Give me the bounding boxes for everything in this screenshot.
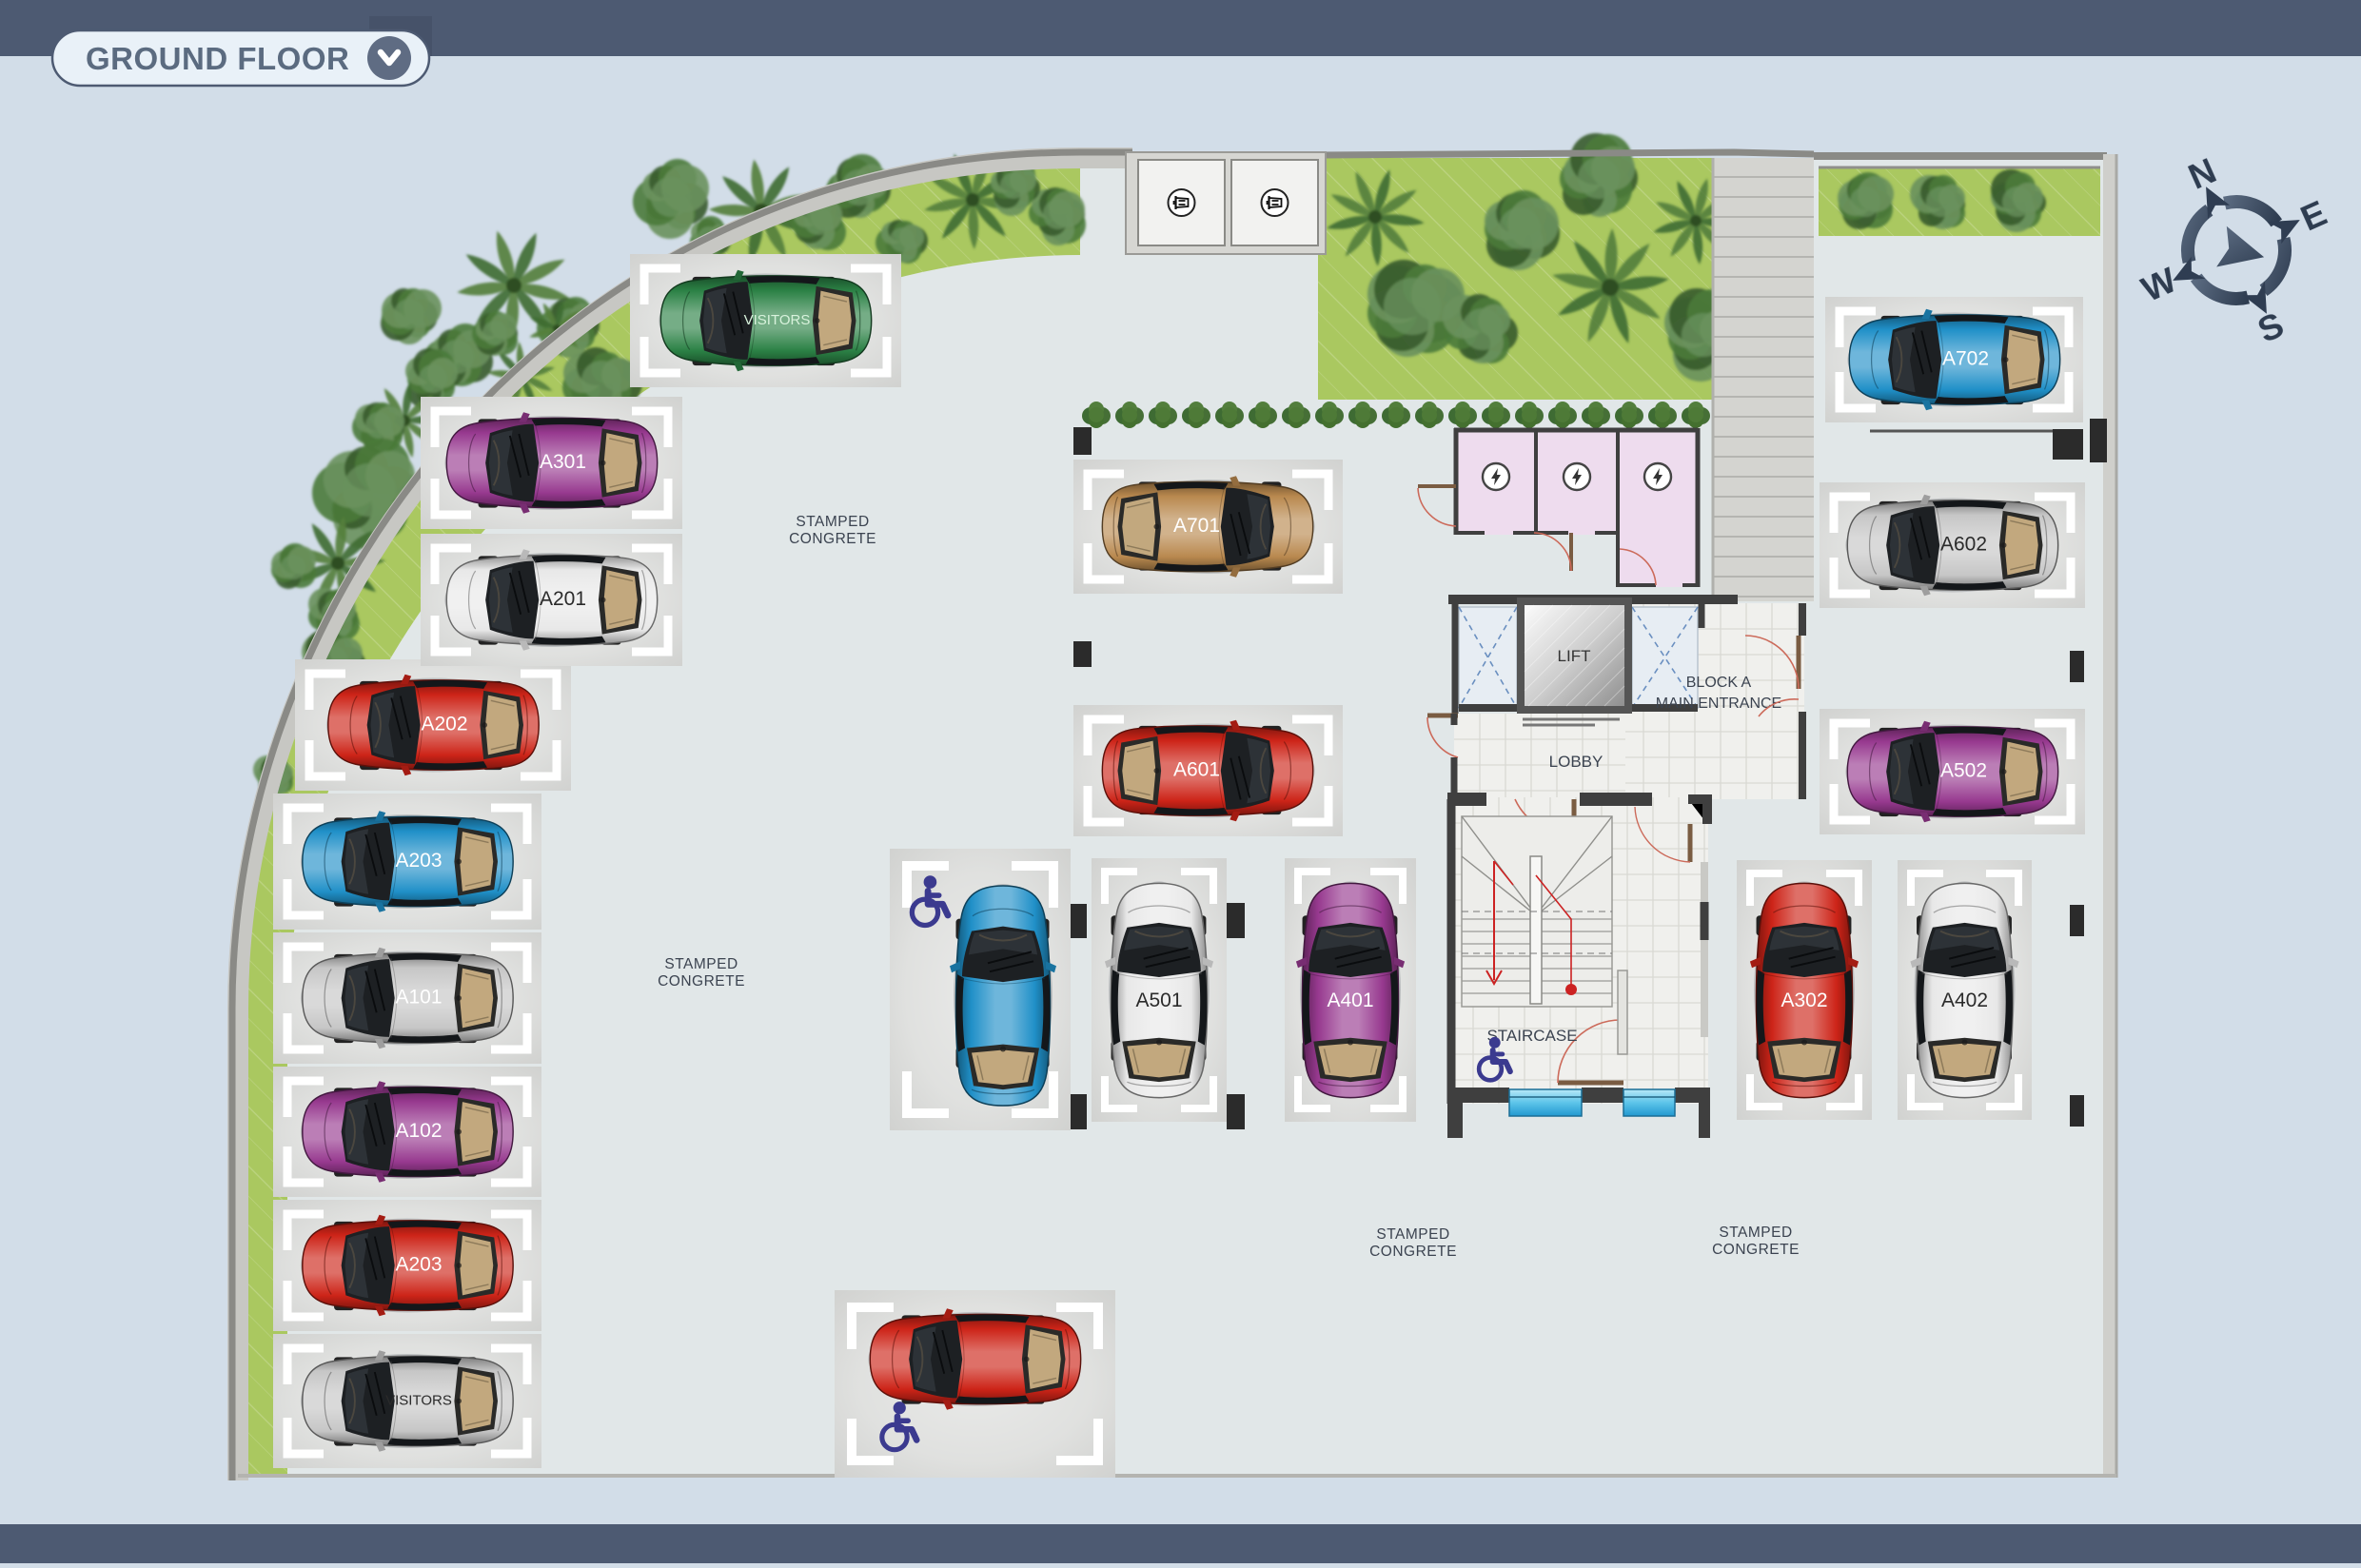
svg-text:CONGRETE: CONGRETE — [1712, 1242, 1800, 1258]
svg-text:A701: A701 — [1173, 515, 1220, 537]
svg-text:A602: A602 — [1940, 534, 1987, 556]
svg-text:A401: A401 — [1327, 990, 1373, 1011]
svg-text:STAMPED: STAMPED — [664, 956, 738, 972]
svg-text:STAMPED: STAMPED — [796, 514, 869, 530]
svg-text:STAMPED: STAMPED — [1719, 1225, 1792, 1241]
svg-text:A101: A101 — [395, 987, 442, 1009]
svg-text:A501: A501 — [1135, 990, 1182, 1011]
svg-text:A402: A402 — [1941, 990, 1988, 1011]
svg-text:GROUND FLOOR: GROUND FLOOR — [86, 41, 349, 76]
svg-text:STAMPED: STAMPED — [1376, 1226, 1449, 1243]
svg-text:MAIN ENTRANCE: MAIN ENTRANCE — [1656, 696, 1781, 712]
svg-text:STAIRCASE: STAIRCASE — [1486, 1027, 1577, 1045]
svg-text:A301: A301 — [540, 451, 586, 473]
svg-text:A203: A203 — [395, 850, 442, 872]
svg-text:CONGRETE: CONGRETE — [789, 531, 876, 547]
svg-text:VISITORS: VISITORS — [385, 1392, 452, 1408]
svg-text:A601: A601 — [1173, 759, 1220, 781]
svg-text:BLOCK A: BLOCK A — [1686, 675, 1752, 691]
svg-text:A102: A102 — [395, 1120, 442, 1142]
svg-text:A202: A202 — [421, 714, 467, 735]
svg-text:CONGRETE: CONGRETE — [658, 973, 745, 990]
svg-text:A201: A201 — [540, 588, 586, 610]
svg-text:CONGRETE: CONGRETE — [1369, 1244, 1457, 1260]
svg-text:A502: A502 — [1940, 760, 1987, 782]
svg-text:A302: A302 — [1781, 990, 1827, 1011]
svg-text:VISITORS: VISITORS — [744, 312, 811, 328]
svg-text:LIFT: LIFT — [1558, 647, 1591, 665]
svg-text:A702: A702 — [1942, 348, 1989, 370]
svg-text:A203: A203 — [395, 1254, 442, 1276]
svg-text:LOBBY: LOBBY — [1549, 753, 1604, 771]
